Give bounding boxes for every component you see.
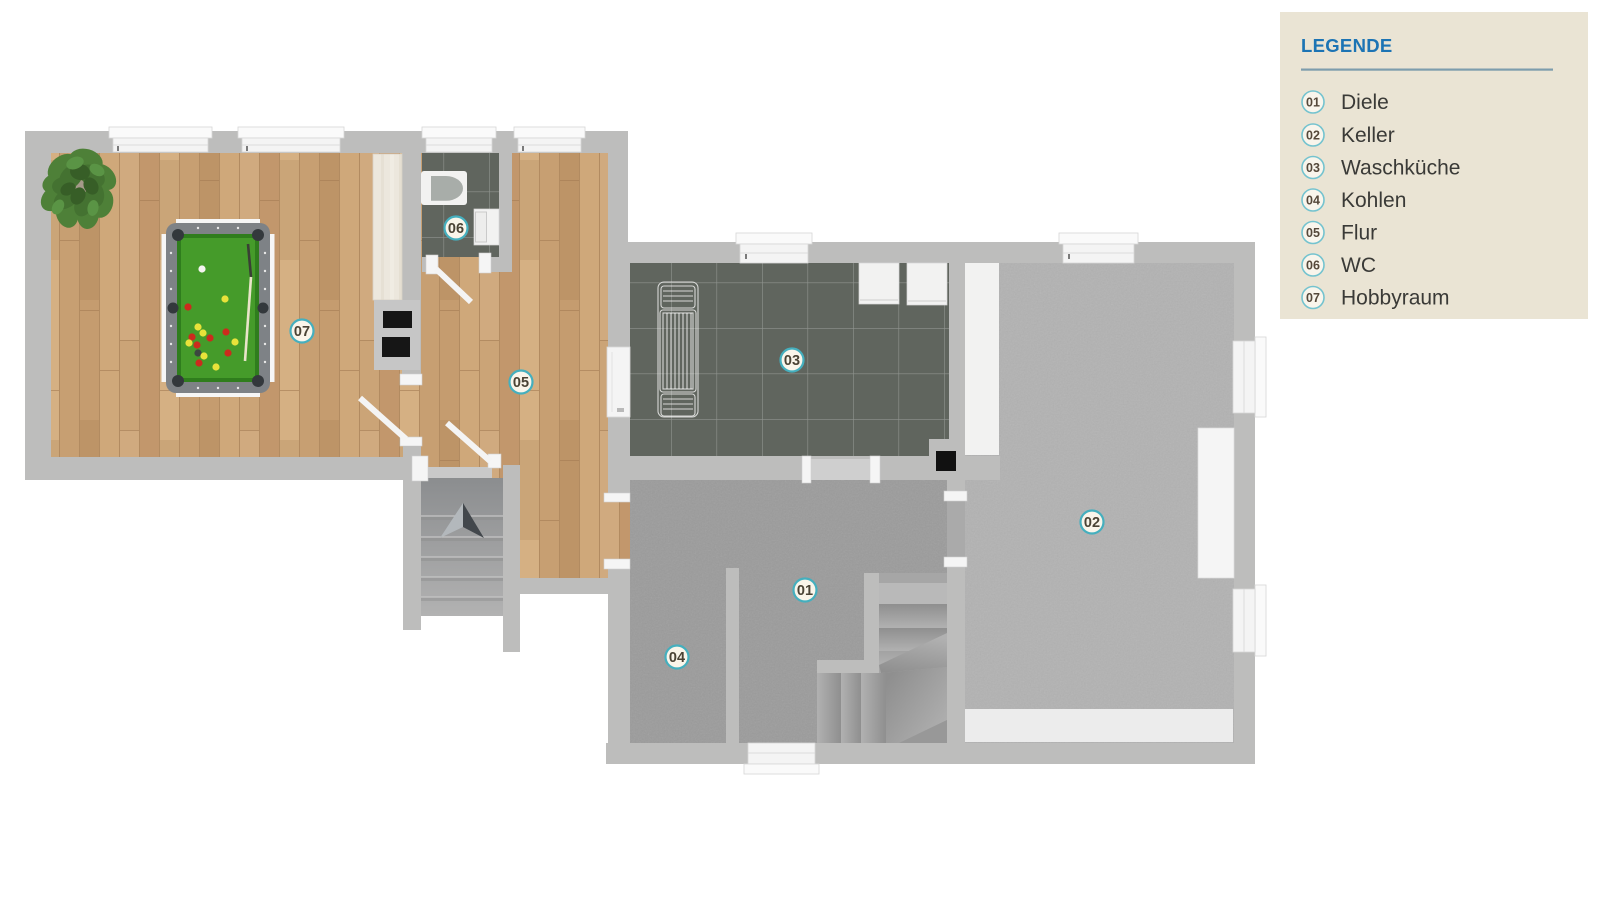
svg-text:WC: WC	[1341, 254, 1376, 277]
svg-text:Diele: Diele	[1341, 91, 1389, 114]
svg-text:Waschküche: Waschküche	[1341, 157, 1460, 180]
svg-text:01: 01	[797, 583, 813, 599]
svg-text:04: 04	[1306, 194, 1320, 208]
svg-text:Kohlen: Kohlen	[1341, 189, 1406, 212]
svg-text:06: 06	[1306, 259, 1320, 273]
svg-text:Hobbyraum: Hobbyraum	[1341, 287, 1450, 310]
svg-text:05: 05	[513, 375, 529, 391]
svg-text:03: 03	[1306, 161, 1320, 175]
svg-text:01: 01	[1306, 96, 1320, 110]
svg-text:03: 03	[784, 353, 800, 369]
svg-text:Keller: Keller	[1341, 124, 1395, 147]
svg-text:06: 06	[448, 221, 464, 237]
svg-text:04: 04	[669, 650, 685, 666]
svg-text:LEGENDE: LEGENDE	[1301, 35, 1393, 56]
svg-text:Flur: Flur	[1341, 222, 1377, 245]
svg-text:07: 07	[294, 324, 310, 340]
svg-text:05: 05	[1306, 226, 1320, 240]
svg-text:02: 02	[1306, 129, 1320, 143]
svg-text:07: 07	[1306, 291, 1320, 305]
svg-text:02: 02	[1084, 515, 1100, 531]
